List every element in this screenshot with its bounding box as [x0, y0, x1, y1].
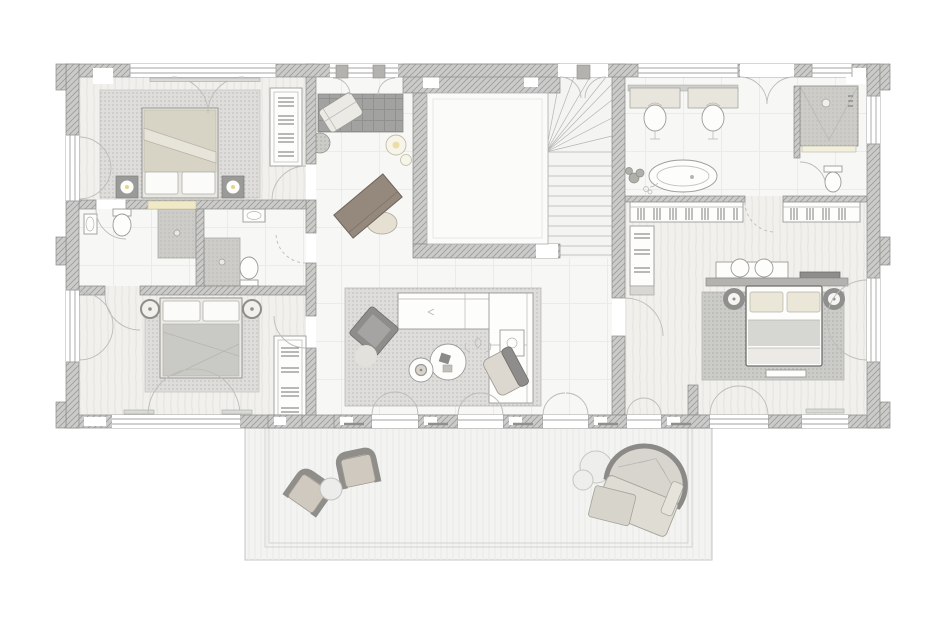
wall-left-wing-b [306, 200, 316, 233]
freestanding-bathtub [649, 160, 717, 192]
toilet [824, 166, 842, 192]
pillow-right [787, 292, 820, 312]
core-wall-left [413, 93, 427, 244]
wardrobe [270, 88, 302, 166]
linen-closet [630, 226, 654, 295]
wardrobe-rail-right [783, 202, 860, 222]
toilet-tank-bottom [240, 280, 258, 286]
column [688, 385, 698, 415]
window-sill [150, 78, 260, 82]
window-masterbath-top [638, 64, 738, 77]
round-side-pouf [355, 345, 377, 367]
pilaster-right-top [880, 64, 890, 90]
bench-cushion-left [731, 259, 749, 277]
side-table-small [401, 155, 412, 166]
wall-bath-bottom-b [140, 286, 306, 295]
outdoor-round-table-small [573, 470, 593, 490]
master-bedroom [702, 259, 848, 380]
wall-left-wing-a [306, 64, 316, 164]
pilaster-left-mid [56, 237, 66, 265]
pilaster-left-top [56, 64, 66, 90]
wall-left [66, 64, 79, 428]
pillow-left [145, 172, 178, 194]
headboard-wall [706, 278, 848, 286]
bench-cushion-right [755, 259, 773, 277]
pilaster-right-mid [880, 237, 890, 265]
pilaster-right-bottom [880, 402, 890, 428]
floor-plan-drawing [0, 0, 950, 628]
duvet [163, 324, 239, 376]
dressing-wall-right [783, 196, 867, 202]
shower-drain-bottom [219, 259, 225, 265]
wall-bath-divider [196, 209, 204, 286]
console [800, 272, 840, 278]
floor-plan-canvas [0, 0, 950, 628]
terrace [245, 428, 712, 560]
wall-right-wing-a [612, 64, 625, 298]
lamp-glow-left [125, 185, 129, 189]
toilet-bottom [240, 257, 258, 279]
shower [800, 86, 858, 152]
window-masterbath-right [867, 96, 880, 144]
pillow-right [203, 301, 239, 321]
wall-left-wing-c [306, 263, 316, 316]
closet-base [630, 286, 654, 295]
dressing-wall-left [625, 196, 745, 202]
wardrobe-rail-left [630, 202, 743, 222]
wall-bath-bottom-a [79, 286, 105, 295]
bedroom-left-bottom [141, 298, 261, 392]
lamp-glow-right [231, 185, 235, 189]
blanket [748, 320, 820, 346]
pillow-left [750, 292, 783, 312]
shower-drain-top [174, 230, 180, 236]
pillow-right [182, 172, 215, 194]
double-bed [746, 286, 822, 366]
toilet-top [113, 214, 131, 236]
outdoor-side-table [320, 478, 342, 500]
core-void [427, 93, 548, 244]
washbasin-bottom [243, 209, 265, 222]
stair-floor [548, 77, 612, 258]
wall-bath-top-a [79, 200, 96, 209]
pillow-left [163, 301, 200, 321]
wall-right-wing-b [612, 336, 625, 428]
vanity-counter-yellow [148, 201, 196, 209]
window-master-bottom [802, 409, 848, 428]
pilaster-left-bottom [56, 402, 66, 428]
core-shaft [536, 244, 558, 258]
foot-bench [766, 370, 806, 377]
wc-partition [794, 86, 800, 158]
window-shower-top [812, 64, 852, 77]
shower-head [822, 99, 830, 107]
shower-glass [802, 146, 856, 152]
niche-top-left [93, 68, 113, 84]
bench [716, 262, 788, 278]
